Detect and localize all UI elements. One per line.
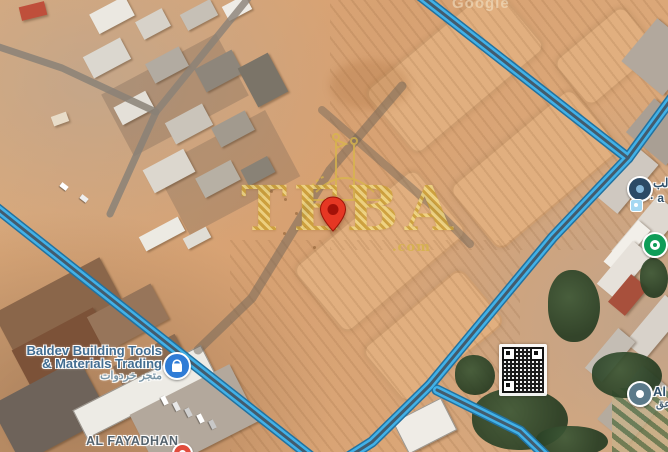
shopping-bag-poi-icon[interactable] — [163, 352, 191, 380]
poi-baldev-line2: & Materials Trading — [22, 357, 162, 370]
teba-watermark-domain: .com — [392, 240, 431, 255]
qr-finder — [502, 347, 516, 361]
poi-ring — [650, 240, 660, 250]
map-attribution: Google — [452, 0, 510, 12]
qr-finder — [502, 379, 516, 393]
green-poi-icon[interactable] — [642, 232, 668, 258]
poi-ring-center — [653, 243, 657, 247]
teba-watermark: TEBA — [241, 178, 459, 240]
poi-label-right-top-1[interactable]: الب — [653, 176, 668, 190]
poi-label-right-bottom-2[interactable]: عق — [656, 399, 668, 410]
poi-dot — [636, 185, 644, 193]
poi-badge-dot — [634, 203, 638, 207]
qr-finder — [530, 347, 544, 361]
map-canvas[interactable]: TEBA .com Baldev Building Tools & Materi… — [0, 0, 668, 452]
location-pin-icon[interactable] — [318, 196, 348, 232]
qr-code-watermark — [499, 344, 547, 396]
poi-dot — [636, 390, 644, 398]
poi-badge-icon — [630, 199, 643, 212]
poi-marker-icon[interactable] — [627, 381, 653, 407]
poi-label-baldev[interactable]: Baldev Building Tools & Materials Tradin… — [22, 344, 162, 382]
poi-label-al-fayadhan[interactable]: AL FAYADHAN — [86, 434, 179, 448]
poi-label-right-top-2[interactable]: · a — [650, 191, 664, 205]
poi-baldev-arabic: متجر خردوات — [22, 371, 162, 382]
poi-label-right-bottom-1[interactable]: Al — [653, 384, 666, 399]
shopping-bag-glyph — [165, 354, 189, 378]
